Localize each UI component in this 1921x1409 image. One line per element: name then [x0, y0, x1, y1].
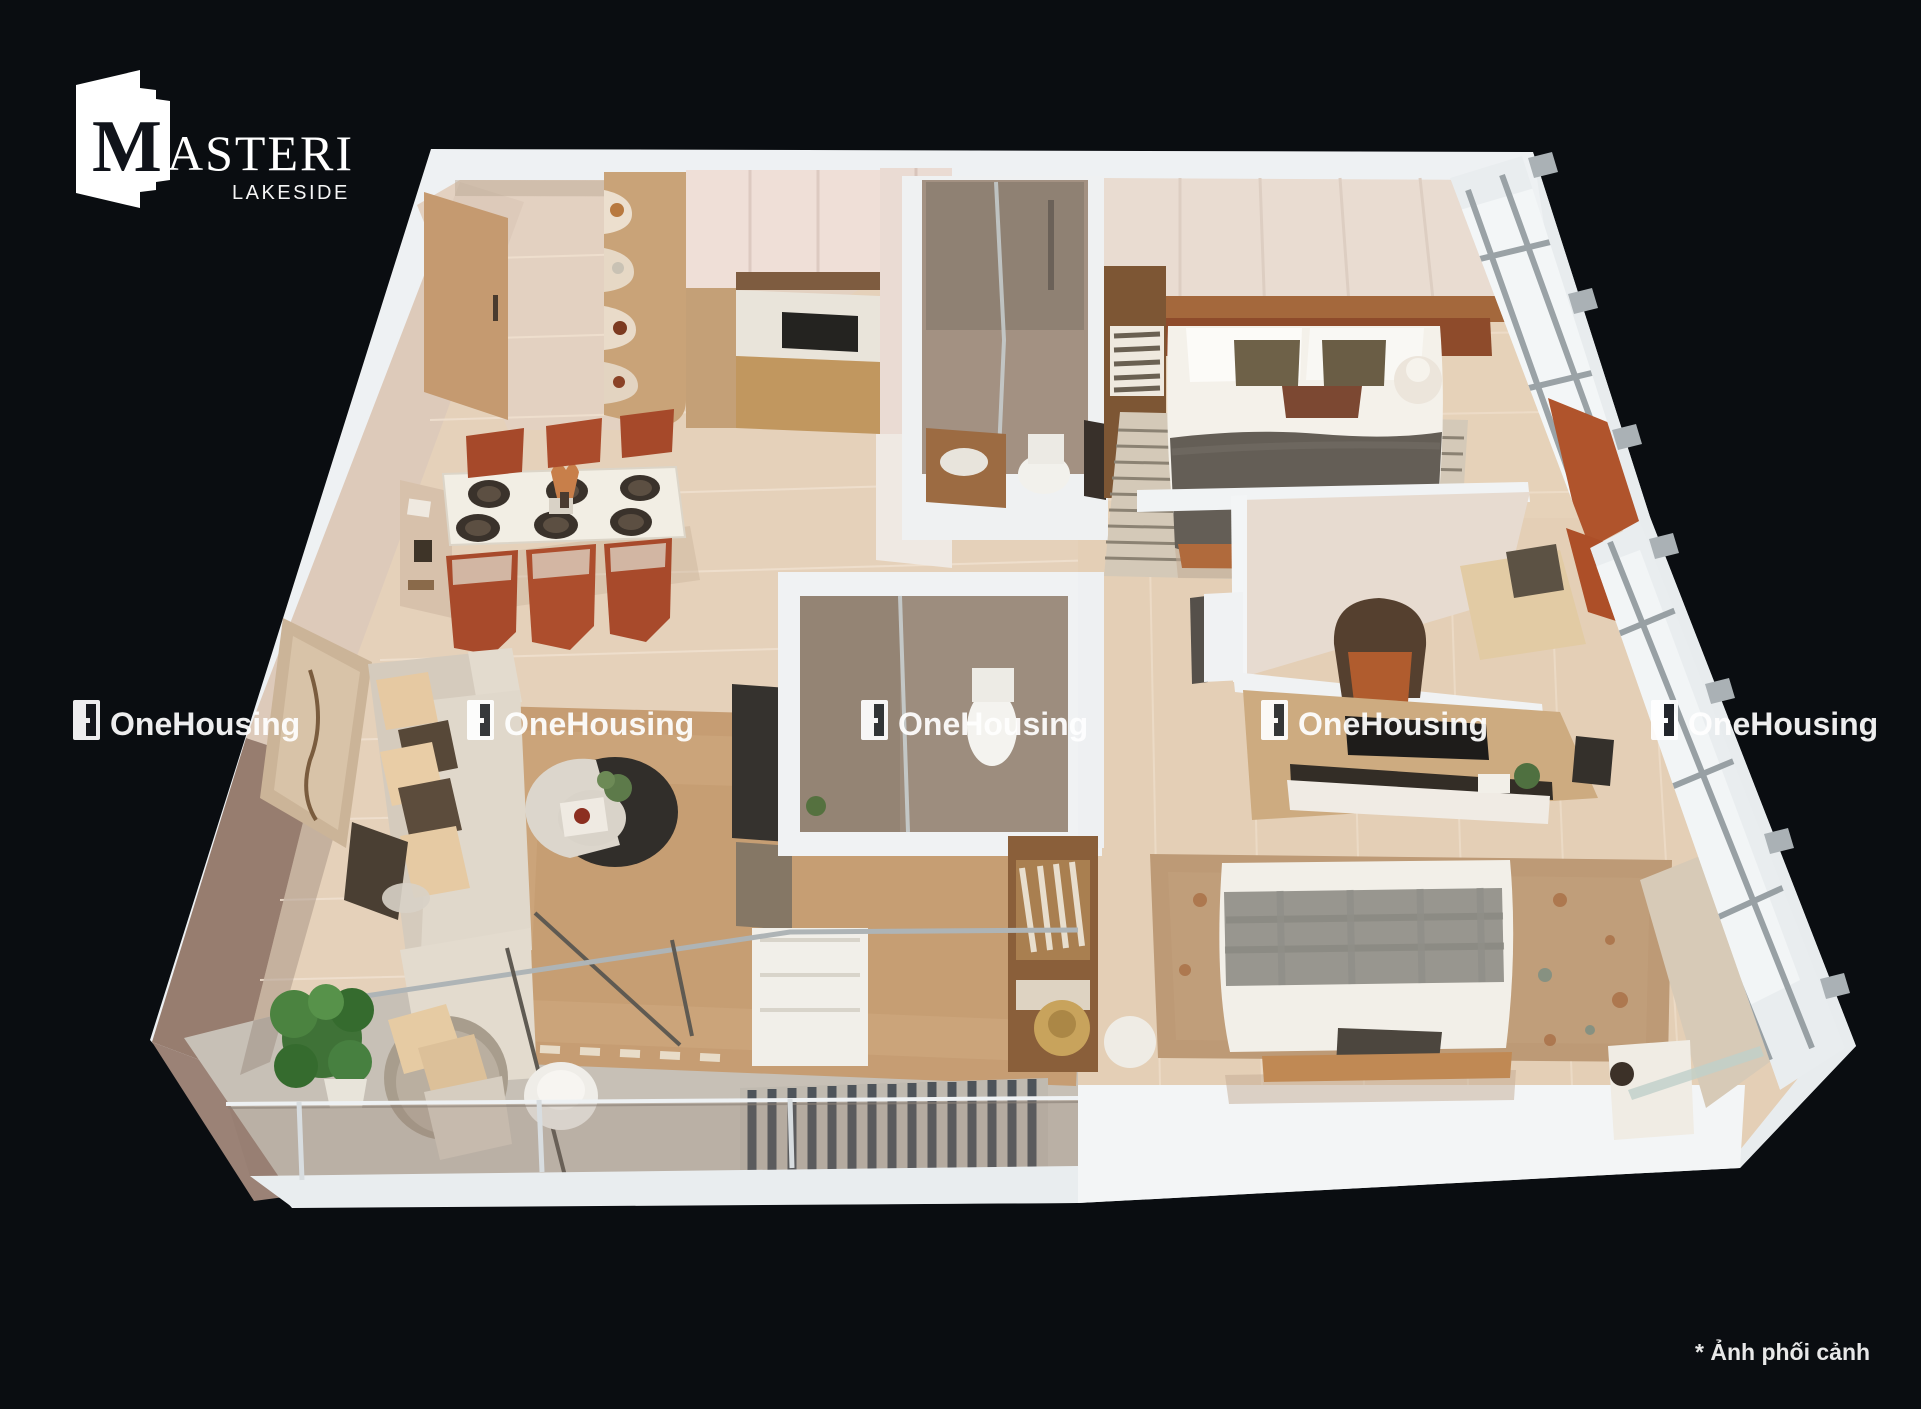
svg-text:LAKESIDE: LAKESIDE — [232, 182, 350, 204]
svg-text:OneHousing: OneHousing — [898, 706, 1088, 742]
svg-text:OneHousing: OneHousing — [1298, 706, 1488, 742]
svg-text:OneHousing: OneHousing — [1688, 706, 1878, 742]
svg-text:* Ảnh phối cảnh: * Ảnh phối cảnh — [1695, 1337, 1870, 1365]
svg-text:OneHousing: OneHousing — [110, 706, 300, 742]
svg-text:OneHousing: OneHousing — [504, 706, 694, 742]
svg-text:M: M — [92, 106, 162, 188]
svg-text:ASTERI: ASTERI — [167, 125, 354, 181]
